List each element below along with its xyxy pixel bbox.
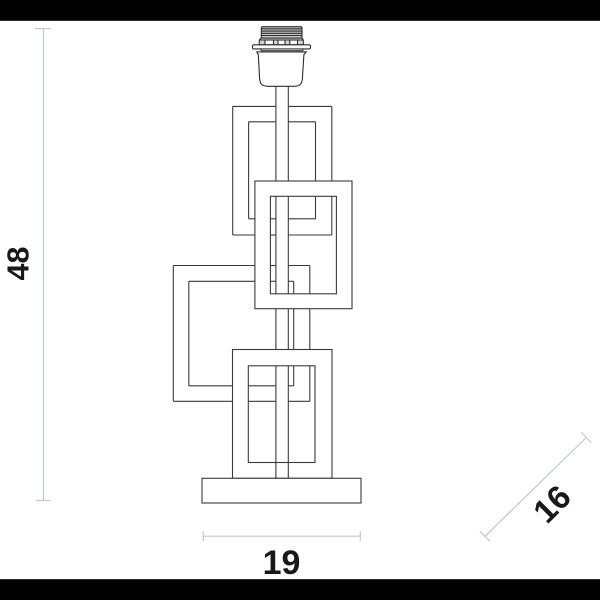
svg-text:48: 48 — [2, 247, 36, 281]
svg-text:19: 19 — [263, 544, 301, 582]
